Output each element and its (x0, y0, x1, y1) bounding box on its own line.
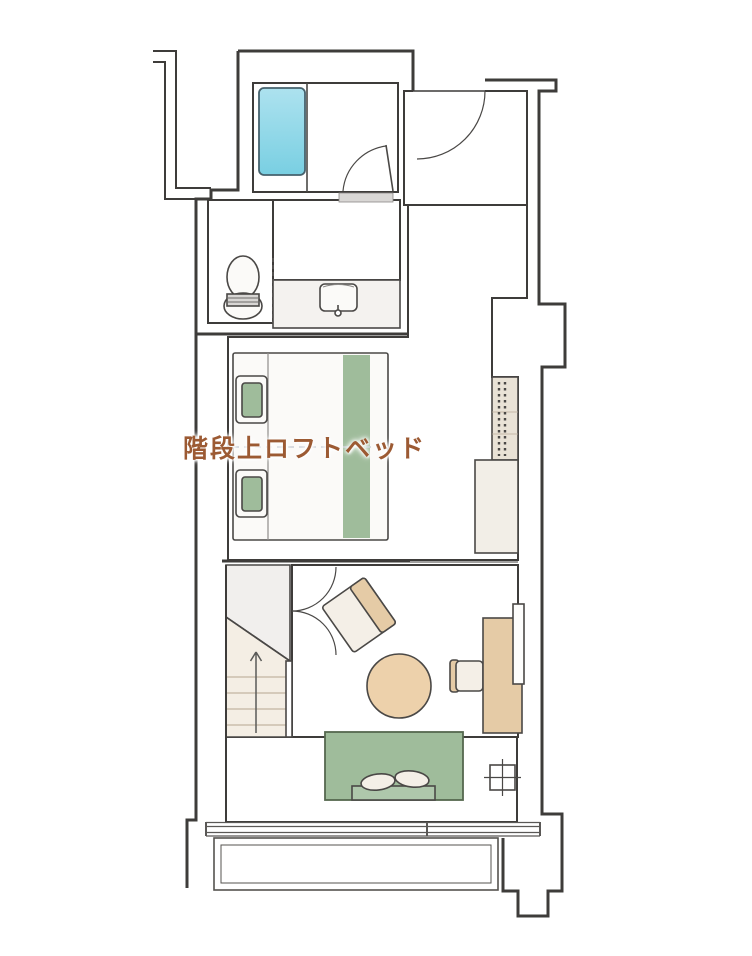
entry-floor (404, 91, 527, 205)
toilet-icon (224, 256, 262, 319)
lounge-chair-icon (322, 577, 397, 653)
floorplan-image: 階段上ロフトベッド (0, 0, 752, 956)
vanity-sink-icon (320, 284, 357, 316)
floorplan-drawing (0, 0, 752, 956)
staircase (226, 565, 292, 737)
pillow-icon (236, 376, 267, 423)
ac-unit-icon (484, 759, 521, 796)
bathroom-door-icon (343, 145, 393, 191)
bathroom-threshold (339, 193, 393, 202)
desk-chair-icon (450, 660, 483, 692)
bathroom (253, 83, 398, 202)
pillow-icon (236, 470, 267, 517)
bathtub (259, 88, 305, 175)
wall-tv-icon (513, 604, 524, 684)
counter (475, 460, 518, 553)
entry-door-icon (413, 91, 485, 159)
balcony (214, 838, 498, 890)
stair-railing (286, 661, 292, 737)
round-table-icon (367, 654, 431, 718)
sofa-bench (325, 732, 463, 800)
loft-bed-label: 階段上ロフトベッド (183, 429, 426, 465)
window (206, 822, 540, 836)
hanger-rack-icon (492, 377, 518, 460)
